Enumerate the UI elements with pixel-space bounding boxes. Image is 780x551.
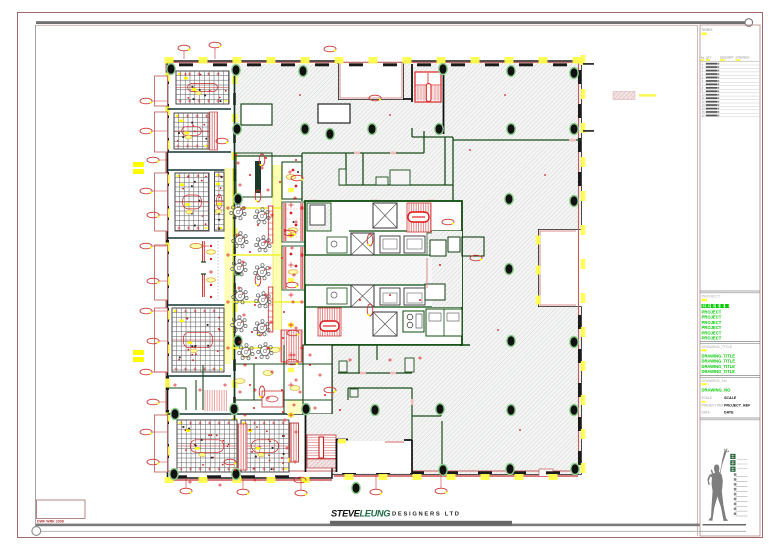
svg-text:PROJECT: PROJECT [702,294,721,299]
svg-text:Notes: Notes [702,27,713,32]
svg-text:STEVELEUNG: STEVELEUNG [331,509,390,519]
svg-text:QTY: QTY [706,56,712,60]
svg-text:DRAWING_NO: DRAWING_NO [702,388,732,393]
svg-text:DRAWING_No: DRAWING_No [702,379,727,383]
svg-text:SCALE: SCALE [724,396,737,400]
svg-text:DATE: DATE [702,411,710,415]
svg-text:DRAWING_TITLE: DRAWING_TITLE [702,369,736,374]
svg-text:DWF WRK 2008: DWF WRK 2008 [37,520,64,524]
svg-text:DRAWING_TITLE: DRAWING_TITLE [702,345,733,349]
svg-text:SCALE: SCALE [702,396,712,400]
svg-text:No.: No. [701,56,705,60]
svg-text:PROJECT_REF: PROJECT_REF [724,404,751,408]
svg-text:PROJECT: PROJECT [702,336,722,341]
svg-text:DESCRIPT: DESCRIPT [720,56,734,60]
svg-text:STRATEGY: STRATEGY [736,56,750,60]
svg-text:DESIGNERS LTD: DESIGNERS LTD [392,512,461,518]
svg-text:DATE: DATE [724,411,734,415]
svg-text:PROJECT REF: PROJECT REF [702,404,724,408]
